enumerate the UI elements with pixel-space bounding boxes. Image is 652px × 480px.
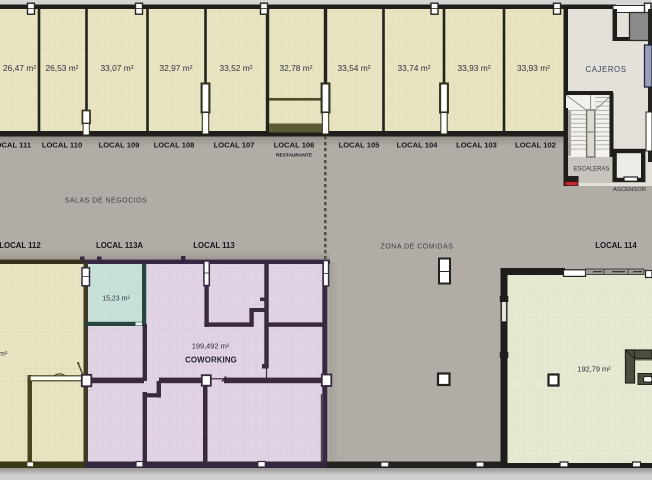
svg-text:LOCAL 107: LOCAL 107 [214,141,255,150]
svg-text:ZONA DE COMIDAS: ZONA DE COMIDAS [381,244,454,251]
svg-text:33,93 m²: 33,93 m² [457,63,490,73]
svg-text:26,47 m²: 26,47 m² [3,63,36,73]
svg-text:LOCAL 113A: LOCAL 113A [96,241,143,250]
svg-text:LOCAL 104: LOCAL 104 [397,141,439,150]
svg-text:LOCAL 103: LOCAL 103 [456,141,497,150]
svg-text:33,54 m²: 33,54 m² [337,63,370,73]
svg-text:33,07 m²: 33,07 m² [100,63,133,73]
svg-text:SALAS DE NEGOCIOS: SALAS DE NEGOCIOS [65,198,147,205]
svg-text:LOCAL 102: LOCAL 102 [515,141,556,150]
svg-text:LOCAL 108: LOCAL 108 [154,141,195,150]
svg-text:LOCAL 113: LOCAL 113 [193,241,235,250]
svg-text:33,74 m²: 33,74 m² [397,63,430,73]
svg-text:LOCAL 105: LOCAL 105 [339,141,381,150]
svg-text:RESTAURANTE: RESTAURANTE [276,153,313,159]
svg-text:32,78 m²: 32,78 m² [279,63,312,73]
svg-text:COWORKING: COWORKING [185,356,237,365]
svg-text:15,23 m²: 15,23 m² [102,296,130,303]
svg-text:192,79 m²: 192,79 m² [577,365,611,374]
svg-text:ESCALERAS: ESCALERAS [573,166,609,172]
svg-text:LOCAL 112: LOCAL 112 [0,241,41,250]
svg-text:26,53 m²: 26,53 m² [45,63,78,73]
svg-text:LOCAL 114: LOCAL 114 [595,241,637,250]
svg-text:33,52 m²: 33,52 m² [219,63,252,73]
svg-text:33,93 m²: 33,93 m² [517,63,550,73]
svg-text:ASCENSOR: ASCENSOR [613,187,646,193]
svg-text:LOCAL 110: LOCAL 110 [42,141,82,150]
svg-text:LOCAL 109: LOCAL 109 [99,141,140,150]
svg-text:m²: m² [0,349,8,358]
svg-text:32,97 m²: 32,97 m² [159,63,192,73]
svg-text:LOCAL 111: LOCAL 111 [0,141,32,150]
svg-text:LOCAL 106: LOCAL 106 [274,141,315,150]
svg-text:199,492 m²: 199,492 m² [192,342,230,351]
svg-text:CAJEROS: CAJEROS [585,65,626,74]
